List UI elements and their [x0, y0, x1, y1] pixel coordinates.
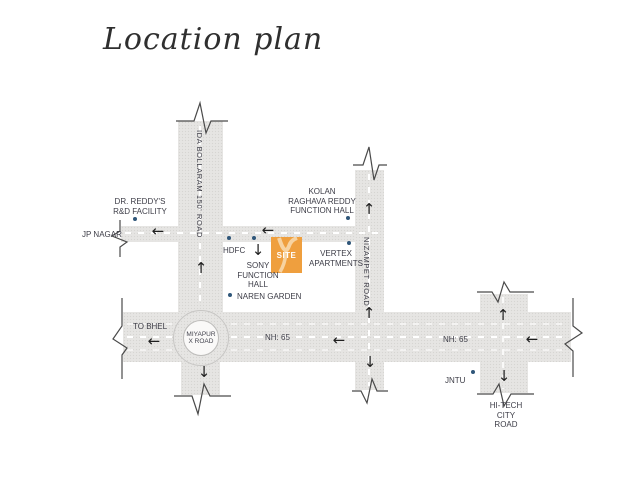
marker-dot [252, 236, 256, 240]
page-title: Location plan [103, 22, 323, 57]
marker-dot [133, 217, 137, 221]
arrow-left-icon: ← [148, 221, 168, 241]
label-vertex-apartments: VERTEX APARTMENTS [309, 249, 363, 268]
arrow-down-icon: ↓ [194, 362, 214, 382]
arrow-left-icon: ← [258, 220, 278, 240]
label-jntu: JNTU [445, 376, 465, 386]
marker-dot [346, 216, 350, 220]
site-label: SITE [277, 251, 297, 260]
label-to-bhel: TO BHEL [133, 322, 167, 332]
arrow-left-icon: ← [329, 330, 349, 350]
label-dr-reddys: DR. REDDY'S R&D FACILITY [113, 197, 167, 216]
label-jp-nagar: JP NAGAR [82, 230, 122, 240]
label-nizampet-road: NIZAMPET ROAD [362, 237, 371, 306]
arrow-left-icon: ← [522, 329, 542, 349]
label-sony-function-hall: SONY FUNCTION HALL [237, 261, 278, 290]
label-hdfc: HDFC [223, 246, 245, 256]
arrow-down-icon: ↓ [494, 366, 514, 386]
marker-dot [471, 370, 475, 374]
arrow-down-icon: ↓ [248, 240, 268, 260]
arrow-up-icon: ↑ [359, 199, 379, 219]
arrow-up-icon: ↑ [493, 305, 513, 325]
arrow-up-icon: ↑ [191, 258, 211, 278]
arrow-left-icon: ← [144, 331, 164, 351]
marker-dot [347, 241, 351, 245]
label-kolan-function-hall: KOLAN RAGHAVA REDDY FUNCTION HALL [288, 187, 356, 216]
label-ida-bollaram-road: IDA BOLLARAM 150' ROAD [195, 130, 204, 238]
arrow-down-icon: ↓ [360, 352, 380, 372]
miyapur-roundabout-label: MIYAPUR X ROAD [183, 320, 219, 356]
label-nh65-west: NH: 65 [265, 333, 290, 343]
label-nh65-east: NH: 65 [443, 335, 468, 345]
location-plan-map: Location plan MIYAPUR X ROAD [0, 0, 640, 480]
marker-dot [228, 293, 232, 297]
label-hitech-city-road: HI-TECH CITY ROAD [490, 401, 522, 430]
marker-dot [227, 236, 231, 240]
label-naren-garden: NAREN GARDEN [237, 292, 301, 302]
